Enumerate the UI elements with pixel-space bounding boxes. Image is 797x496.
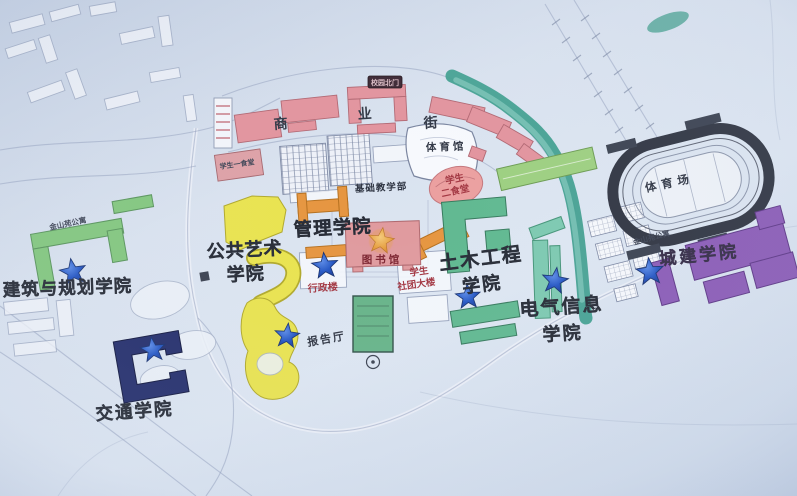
campus-map-svg: 校园北门 商 业 街 学生一食堂 学生 二食堂: [0, 0, 797, 496]
photo-vignette: [0, 0, 797, 496]
campus-map-photo: 校园北门 商 业 街 学生一食堂 学生 二食堂: [0, 0, 797, 496]
